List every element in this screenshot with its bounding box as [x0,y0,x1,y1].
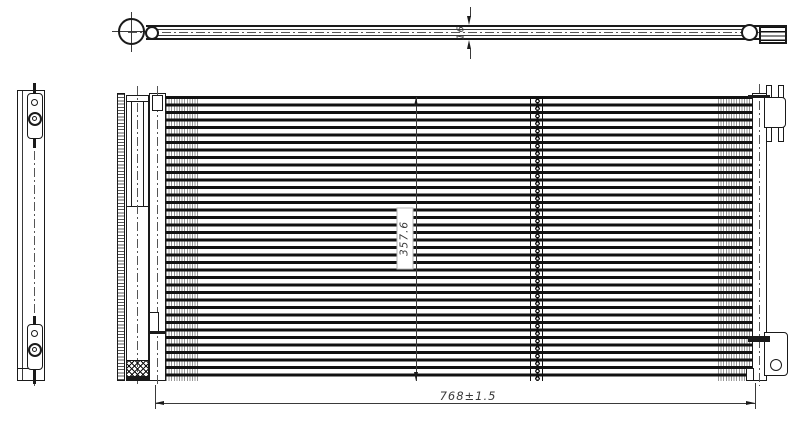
top-bracket-lower-tab-2 [778,126,784,142]
dim-width-arrow-left [155,401,164,405]
left-header-bracket-slot [149,312,159,332]
dim-core-height-line [416,97,417,381]
right-header-foot-step [746,368,754,381]
dim-overall-width-label: 768±1.5 [408,389,528,403]
receiver-drier-bottom-cap [126,376,149,381]
right-header-top-band [748,95,770,98]
dim-width-line [155,403,755,404]
dim-core-height-arrow-top [414,97,418,106]
receiver-drier-end-plug-hatch [127,360,148,376]
top-bracket-lower-tab-1 [766,126,772,142]
side-gasket-strip [117,93,125,381]
left-header-centerline [157,86,158,386]
top-mounting-bracket-body [764,97,786,128]
dim-width-ext-left [155,385,156,409]
dim-width-ext-right [755,383,756,409]
condenser-core [166,96,752,381]
dim-core-height-arrow-bottom [414,372,418,381]
left-header-inlet-notch [152,95,163,111]
core-tube-pattern [166,96,752,381]
right-header-lower-band [748,336,770,342]
left-header-baffle-line [149,331,166,334]
receiver-drier-centerline [137,86,138,386]
bottom-bracket-hole [770,359,782,371]
front-view-condenser: 357.6 768±1.5 [0,0,800,430]
dim-core-height-label: 357.6 [397,208,414,270]
dim-width-arrow-right [746,401,755,405]
drawing-canvas: 16 [0,0,800,430]
